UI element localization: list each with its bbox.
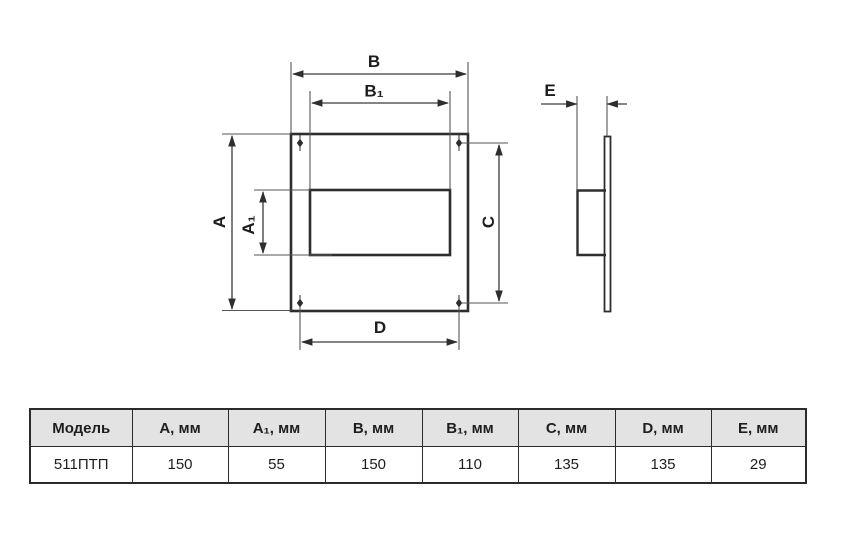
header-e: Е, мм: [711, 409, 806, 447]
duct-opening-outline: [310, 190, 450, 255]
header-a: А, мм: [132, 409, 228, 447]
header-d: D, мм: [615, 409, 711, 447]
cell-c: 135: [518, 447, 615, 484]
header-b1: В₁, мм: [422, 409, 518, 447]
header-b: В, мм: [325, 409, 422, 447]
header-c: С, мм: [518, 409, 615, 447]
cell-model: 511ПТП: [30, 447, 132, 484]
side-view: [541, 96, 627, 312]
cell-a: 150: [132, 447, 228, 484]
header-model: Модель: [30, 409, 132, 447]
dim-label-e: E: [544, 81, 555, 100]
extension-lines-e: [577, 96, 607, 190]
cell-d: 135: [615, 447, 711, 484]
cell-a1: 55: [228, 447, 325, 484]
cell-e: 29: [711, 447, 806, 484]
front-view: [291, 134, 468, 311]
side-plate-outline: [605, 137, 611, 312]
dim-label-b: B: [368, 52, 380, 71]
table-header-row: Модель А, мм А₁, мм В, мм В₁, мм С, мм D…: [30, 409, 806, 447]
dimensions-table: Модель А, мм А₁, мм В, мм В₁, мм С, мм D…: [29, 408, 807, 484]
dim-label-a: A: [210, 216, 229, 228]
header-a1: А₁, мм: [228, 409, 325, 447]
table-row: 511ПТП 150 55 150 110 135 135 29: [30, 447, 806, 484]
dim-label-c: C: [479, 216, 498, 228]
cell-b: 150: [325, 447, 422, 484]
technical-drawing: A A₁ B B₁ C D E: [0, 0, 841, 395]
cell-b1: 110: [422, 447, 518, 484]
dim-label-d: D: [374, 318, 386, 337]
dim-label-a1: A₁: [239, 215, 258, 234]
side-duct-outline: [578, 191, 607, 256]
page: A A₁ B B₁ C D E Модель А, мм А₁, мм В, м…: [0, 0, 841, 536]
dim-label-b1: B₁: [364, 82, 383, 101]
